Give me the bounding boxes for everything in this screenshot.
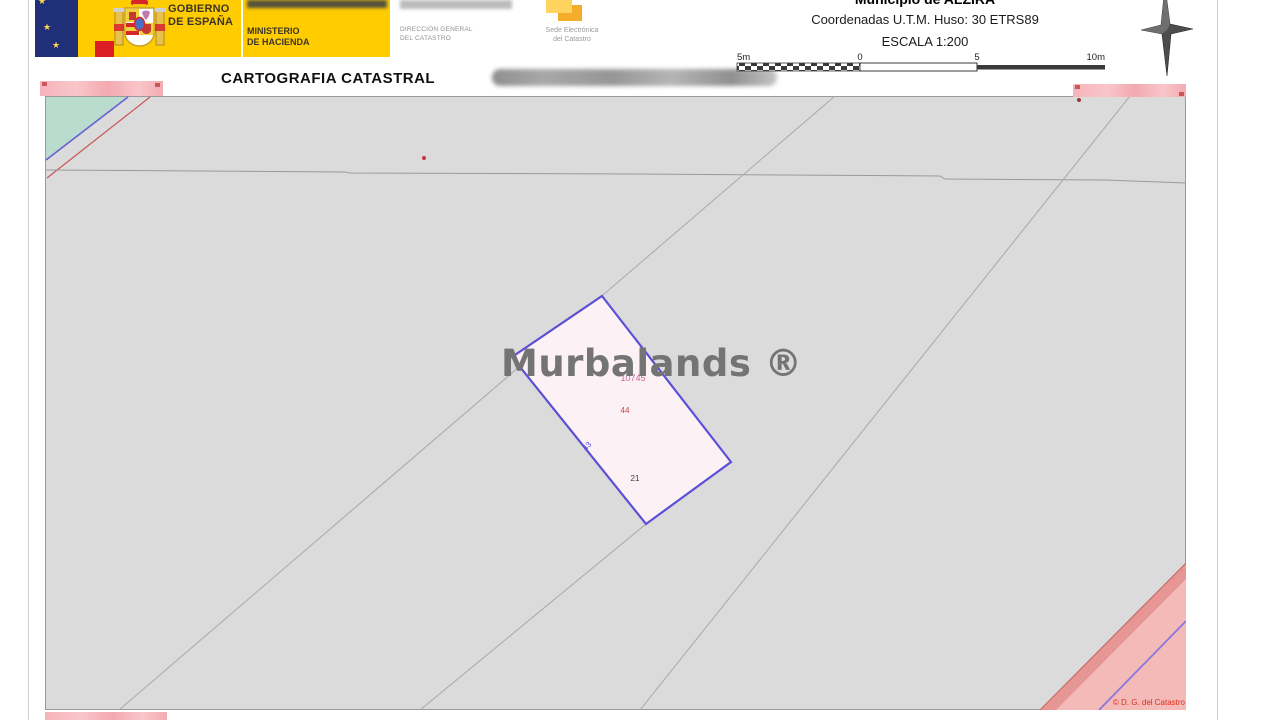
redacted-bar xyxy=(400,0,512,9)
document-title: CARTOGRAFIA CATASTRAL xyxy=(221,70,435,87)
redaction-mark xyxy=(42,82,47,86)
scalebar-checkered-segment xyxy=(737,63,860,71)
scalebar-open-segment xyxy=(860,63,977,71)
gobierno-label: GOBIERNO DE ESPAÑA xyxy=(168,3,233,29)
red-point-marker xyxy=(422,156,426,160)
eu-star-icon: ★ xyxy=(38,0,46,6)
redaction-mark xyxy=(155,83,160,87)
direccion-general-label: DIRECCIÓN GENERAL DEL CATASTRO xyxy=(400,26,473,43)
municipio-title: Municipio de ALZIRA xyxy=(760,0,1090,7)
scale-label: ESCALA 1:200 xyxy=(740,34,1110,49)
north-arrow-icon xyxy=(1137,0,1197,80)
redaction-bar xyxy=(45,712,167,720)
scale-bar: 5m 0 5 10m xyxy=(733,50,1113,76)
redaction-mark xyxy=(1179,92,1184,96)
cadastral-map-document: ★ ★ ★ GOBIERNO DE xyxy=(0,0,1280,720)
spain-coat-of-arms-icon xyxy=(111,0,168,55)
redacted-ministry-text xyxy=(247,0,387,8)
coordinates-label: Coordenadas U.T.M. Huso: 30 ETRS89 xyxy=(740,12,1110,27)
sede-line1: Sede Electrónica xyxy=(528,27,616,36)
redaction-bar xyxy=(1073,84,1186,97)
scalebar-label-5: 5 xyxy=(974,52,979,63)
scalebar-label-0: 0 xyxy=(857,52,862,63)
eu-star-icon: ★ xyxy=(43,23,51,32)
parcel-label-21: 21 xyxy=(631,474,640,483)
direccion-line1: DIRECCIÓN GENERAL xyxy=(400,26,473,35)
redaction-bar xyxy=(40,81,163,96)
sede-line2: del Catastro xyxy=(528,36,616,45)
direccion-line2: DEL CATASTRO xyxy=(400,35,473,44)
eu-star-icon: ★ xyxy=(52,41,60,50)
eu-flag-icon: ★ ★ ★ xyxy=(35,0,78,57)
ministerio-label: MINISTERIO DE HACIENDA xyxy=(247,26,310,48)
redaction-mark xyxy=(1075,85,1080,89)
copyright-label: © D. G. del Catastro xyxy=(1113,698,1186,707)
gobierno-line1: GOBIERNO xyxy=(168,3,233,16)
gobierno-espana-logo: ★ ★ ★ GOBIERNO DE xyxy=(35,0,390,57)
logo-separator xyxy=(241,0,243,57)
sede-electronica-icon xyxy=(546,0,572,13)
map-canvas: 10745 44 43 21 © D. G. del Catastro xyxy=(45,96,1186,710)
watermark: Murbalands ® xyxy=(501,342,802,385)
scalebar-label-10m: 10m xyxy=(1087,52,1106,63)
parcel-label-44: 44 xyxy=(621,406,630,415)
ministerio-line1: MINISTERIO xyxy=(247,26,310,37)
sede-electronica-label: Sede Electrónica del Catastro xyxy=(528,27,616,44)
gobierno-line2: DE ESPAÑA xyxy=(168,16,233,29)
scalebar-label-5m: 5m xyxy=(737,52,750,63)
red-point-marker xyxy=(1077,98,1081,102)
ministerio-line2: DE HACIENDA xyxy=(247,37,310,48)
scalebar-solid-segment xyxy=(977,65,1105,70)
